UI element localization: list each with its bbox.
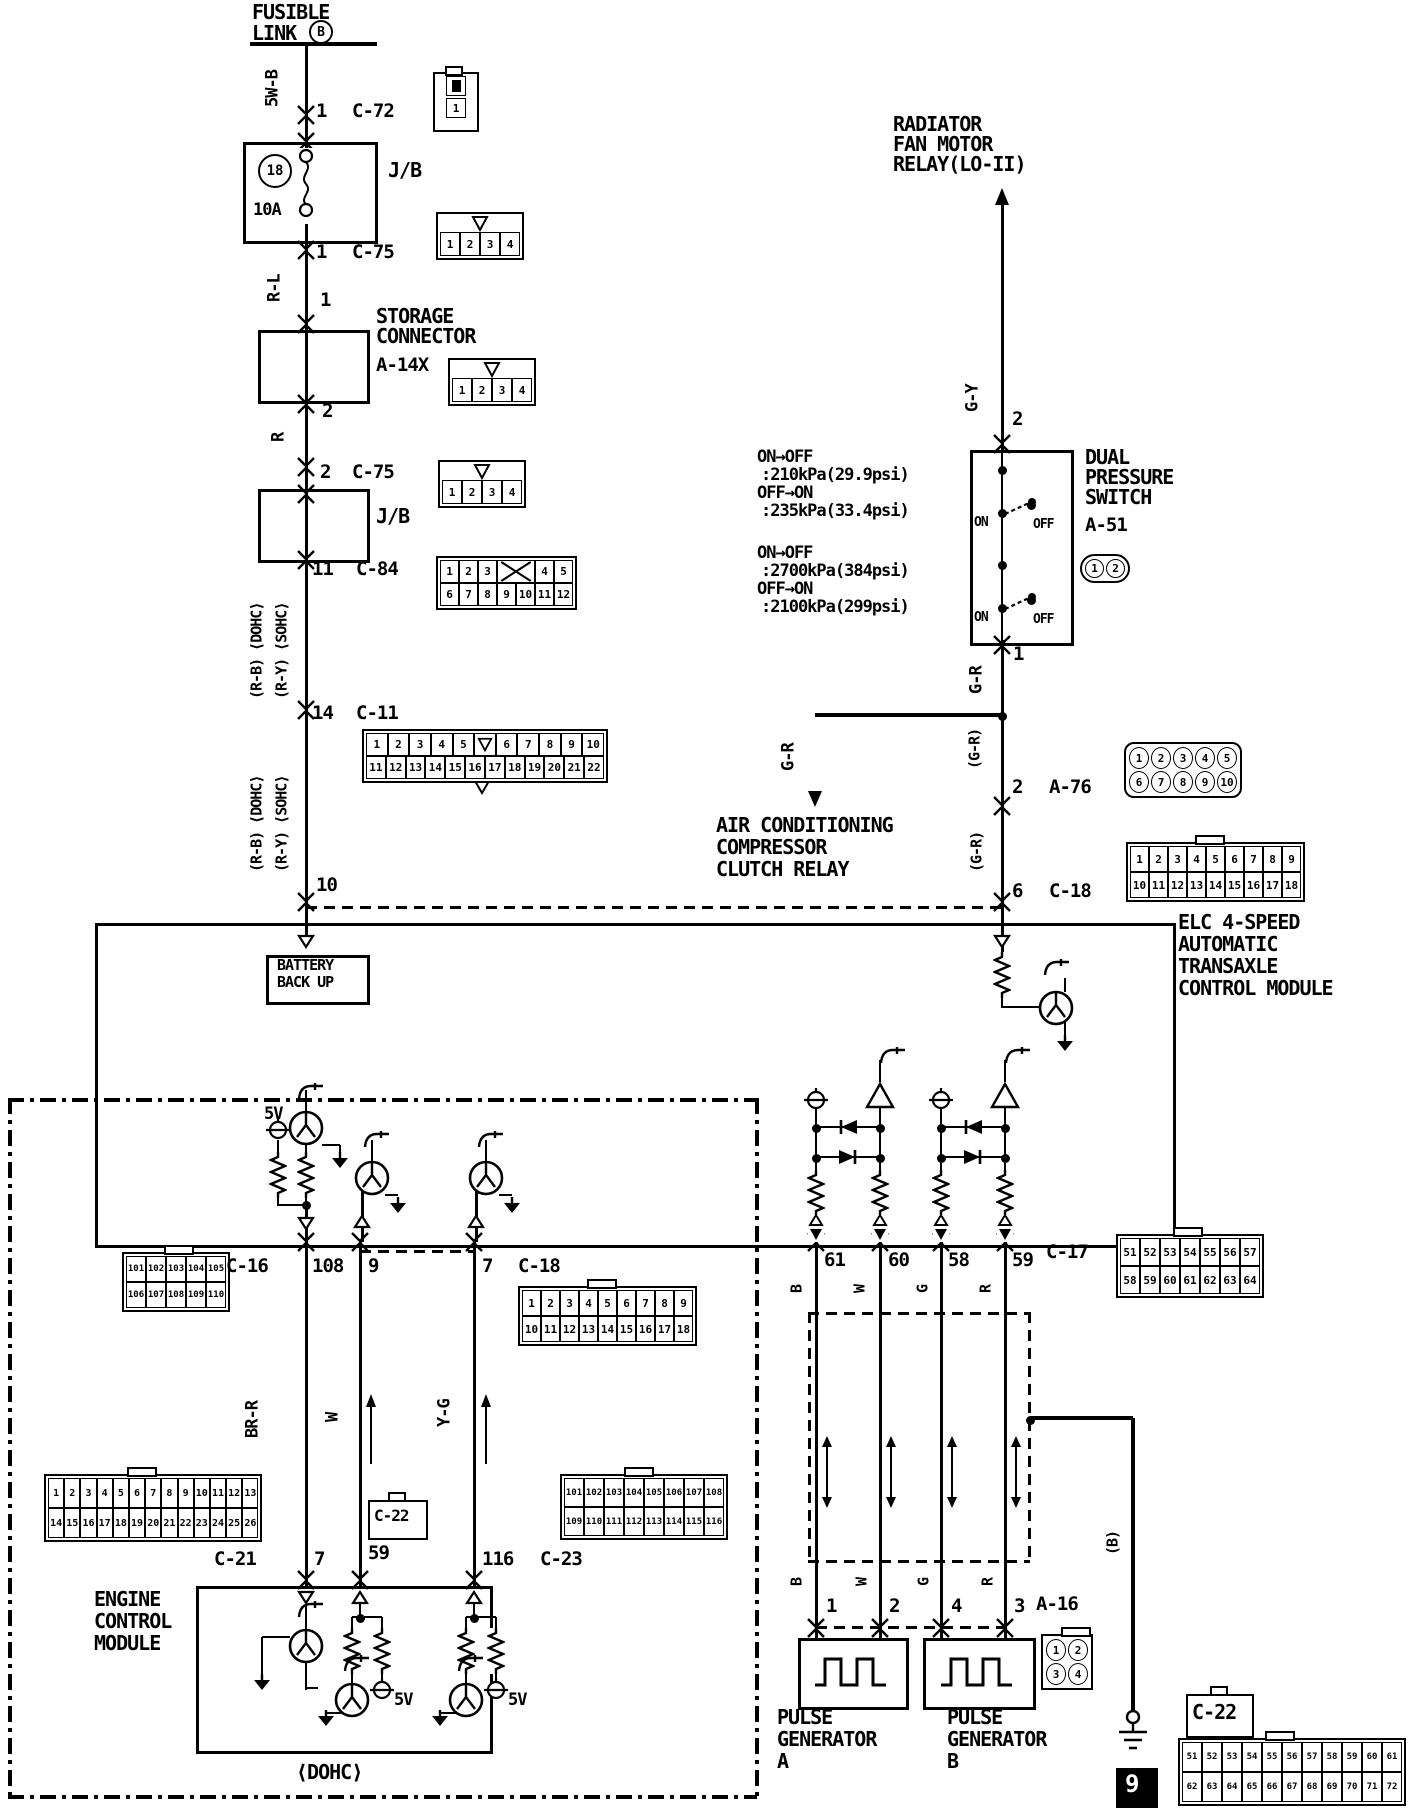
pin-pair-icon (997, 1214, 1013, 1242)
connector-pin: 4 (502, 480, 522, 504)
resistor-icon (996, 1170, 1014, 1216)
square-wave-icon (936, 1650, 1016, 1692)
junction-dot-icon (998, 561, 1007, 570)
keying-notch-icon (474, 733, 496, 756)
connector-c18b-icon: 123456789101112131415161718 (518, 1286, 697, 1346)
pin-triangle-icon (353, 1214, 371, 1229)
label-ecm2: CONTROL (94, 1611, 171, 1632)
label-gy: G-Y (962, 372, 984, 424)
connector-pin: 14 (48, 1508, 64, 1538)
connector-mate-icon (464, 1568, 484, 1592)
collector-hook-icon (1003, 1046, 1033, 1064)
label-pgb1: PULSE (947, 1707, 1002, 1728)
resistor-icon (993, 952, 1011, 998)
connector-c72-icon: 1 (433, 72, 479, 132)
label-p9: 2 (1012, 410, 1022, 430)
label-p7: 14 (312, 704, 333, 724)
junction-dot-icon (998, 712, 1007, 721)
connector-pin: 63 (1220, 1266, 1240, 1294)
connector-pin: 26 (242, 1508, 258, 1538)
connector-pin: 70 (1342, 1772, 1362, 1802)
resistor-icon (932, 1170, 950, 1216)
connector-pin: 12 (226, 1478, 242, 1508)
label-c23: C-23 (540, 1550, 582, 1570)
connector-pin: 13 (1187, 872, 1206, 898)
connector-pin: 67 (1282, 1772, 1302, 1802)
transistor-icon (349, 1155, 395, 1201)
connector-pin: 3 (482, 480, 502, 504)
label-p7b: 7 (482, 1257, 492, 1277)
connector-pin: 4 (535, 560, 554, 583)
connector-pin: 4 (1068, 1663, 1088, 1685)
connector-pin: 1 (48, 1478, 64, 1508)
connector-pin: 64 (1222, 1772, 1242, 1802)
connector-mate-icon (992, 432, 1012, 456)
circled-label-fuse18: 18 (258, 154, 292, 188)
connector-pin: 1 (1085, 559, 1104, 578)
connector-pin: 71 (1362, 1772, 1382, 1802)
label-r1: R (975, 1279, 997, 1299)
connector-tab (388, 1492, 406, 1502)
label-dohc: ⟨DOHC⟩ (296, 1762, 362, 1783)
connector-pin: 2 (1151, 747, 1171, 769)
connector-pin: 11 (210, 1478, 226, 1508)
connector-tab (1265, 1731, 1295, 1741)
connector-pin: 57 (1240, 1238, 1260, 1266)
connector-pin: 4 (512, 378, 532, 402)
junction-dot-icon (937, 1124, 946, 1133)
connector-pin: 3 (409, 733, 431, 756)
connector-a76-icon: 12345678910 (1124, 742, 1242, 798)
label-c72: C-72 (352, 102, 394, 122)
connector-cavity (446, 76, 466, 96)
connector-pin: 10 (194, 1478, 210, 1508)
connector-pin: 6 (129, 1478, 145, 1508)
resistor-icon (269, 1152, 287, 1198)
connector-pin: 68 (1302, 1772, 1322, 1802)
label-p5: 2 (320, 463, 330, 483)
connector-pin: 6 (440, 583, 459, 606)
resistor-icon (807, 1170, 825, 1216)
label-p60: 60 (888, 1251, 909, 1271)
connector-pin: 4 (1195, 747, 1215, 769)
connector-pin: 10 (516, 583, 535, 606)
connector-c75a-icon: 1234 (436, 212, 524, 260)
junction-dot-icon (998, 466, 1007, 475)
connector-pin: 20 (145, 1508, 161, 1538)
connector-mate-icon (296, 103, 316, 127)
connector-pin: 23 (194, 1508, 210, 1538)
connector-pin: 9 (497, 583, 516, 606)
connector-c16-icon: 101102103104105106107108109110 (122, 1252, 230, 1312)
label-p2: 1 (316, 243, 326, 263)
connector-mate-icon (296, 1230, 316, 1254)
signal-arrow-icon (365, 1394, 377, 1464)
connector-pin: 2 (388, 733, 410, 756)
connector-tab (445, 66, 463, 76)
junction-dot-icon (1026, 1416, 1035, 1425)
connector-pin: 60 (1362, 1742, 1382, 1772)
dohc-region-border (8, 1795, 757, 1799)
connector-pin: 12 (560, 1316, 579, 1342)
pin-triangle-icon (297, 934, 315, 949)
label-elc2: AUTOMATIC (1178, 934, 1277, 955)
connector-tab (1210, 1686, 1228, 1696)
connector-pin: 1 (452, 378, 472, 402)
connector-pin: 102 (146, 1256, 166, 1282)
voltage-source-icon (804, 1088, 828, 1112)
label-p4: 2 (322, 402, 332, 422)
label-pgb2: GENERATOR (947, 1729, 1046, 1750)
connector-pin: 60 (1160, 1266, 1180, 1294)
connector-a51-icon: 12 (1080, 554, 1130, 583)
collector-hook-icon (476, 1130, 506, 1148)
connector-pin: 58 (1322, 1742, 1342, 1772)
connector-pin: 54 (1242, 1742, 1262, 1772)
connector-pin: 2 (460, 232, 480, 256)
connector-pin: 8 (539, 733, 561, 756)
connector-tab (624, 1467, 654, 1477)
double-arrow-icon (1010, 1436, 1022, 1508)
connector-pin: 14 (598, 1316, 617, 1342)
label-p59e: 59 (368, 1544, 389, 1564)
connector-pin: 3 (560, 1290, 579, 1316)
junction-dot-icon (876, 1154, 885, 1163)
connector-pin: 101 (126, 1256, 146, 1282)
label-dp3: SWITCH (1085, 487, 1151, 508)
connector-pin: 19 (129, 1508, 145, 1538)
junction-dot-icon (356, 1614, 365, 1623)
label-pga2: GENERATOR (777, 1729, 876, 1750)
shield-dashed-line (808, 1312, 1030, 1315)
label-gr1: G-R (966, 656, 988, 704)
connector-pin: 16 (1244, 872, 1263, 898)
connector-pin: 113 (644, 1507, 664, 1536)
connector-pin: 65 (1242, 1772, 1262, 1802)
connector-pin: 17 (655, 1316, 674, 1342)
collector-hook-icon (342, 1654, 372, 1672)
connector-pin: 7 (517, 733, 539, 756)
connector-pin: 12 (554, 583, 573, 606)
connector-pin: 17 (1263, 872, 1282, 898)
collector-hook-icon (1042, 958, 1072, 976)
connector-pin: 4 (579, 1290, 598, 1316)
connector-c75b-icon: 1234 (438, 460, 526, 508)
connector-pin: 3 (1173, 747, 1193, 769)
label-w2: W (851, 1572, 873, 1592)
label-c84: C-84 (356, 560, 398, 580)
label-g2: G (913, 1572, 935, 1592)
label-off2: OFF (1033, 613, 1053, 627)
connector-pin: 9 (674, 1290, 693, 1316)
collector-hook-icon (456, 1654, 486, 1672)
wire-segment (1030, 1416, 1133, 1420)
connector-pin: 8 (655, 1290, 674, 1316)
junction-dot-icon (1001, 1154, 1010, 1163)
connector-pin: 105 (206, 1256, 226, 1282)
earth-ground-icon (1116, 1710, 1150, 1760)
connector-pin: 54 (1180, 1238, 1200, 1266)
connector-pin: 3 (480, 232, 500, 256)
connector-pin: 1 (446, 98, 466, 118)
connector-pin: 11 (1149, 872, 1168, 898)
switch-contact-icon (1004, 591, 1038, 611)
connector-pin: 1 (440, 232, 460, 256)
connector-pin: 1 (1046, 1639, 1066, 1661)
connector-pin: 25 (226, 1508, 242, 1538)
connector-pin: 107 (684, 1478, 704, 1507)
pin-pair-icon (872, 1214, 888, 1242)
connector-mate-icon (870, 1616, 890, 1640)
connector-pin: 6 (617, 1290, 636, 1316)
resistor-icon (373, 1628, 391, 1674)
fuse-icon (296, 148, 316, 224)
ground-icon (329, 1152, 351, 1170)
wire-segment (940, 1242, 943, 1640)
transistor-icon (283, 1623, 329, 1669)
connector-pin: 2 (1149, 846, 1168, 872)
label-grp1: (G-R) (964, 717, 986, 781)
connector-pin: 6 (496, 733, 518, 756)
connector-pin: 2 (1106, 559, 1125, 578)
transistor-icon (1033, 985, 1079, 1031)
connector-pin: 111 (604, 1507, 624, 1536)
label-v5a: 5V (394, 1692, 412, 1710)
connector-pin: 2 (459, 560, 478, 583)
connector-pin: 1 (1130, 846, 1149, 872)
connector-pin: 9 (561, 733, 583, 756)
connector-boundary-dashed-line (360, 1250, 474, 1253)
junction-dot-icon (812, 1124, 821, 1133)
label-fuseA: 10A (253, 202, 281, 220)
keying-notch-icon (452, 362, 532, 378)
label-p7e: 7 (314, 1550, 324, 1570)
label-rb1: (R-B) ⟨DOHC⟩ (246, 566, 268, 736)
connector-pin: 114 (664, 1507, 684, 1536)
connector-pin: 1 (440, 560, 459, 583)
connector-pin: 1 (366, 733, 388, 756)
label-p9b: 9 (368, 1257, 378, 1277)
connector-c17-icon: 5152535455565758596061626364 (1116, 1234, 1264, 1298)
connector-pin: 18 (1282, 872, 1301, 898)
label-w1: W (849, 1279, 871, 1299)
circled-label-f3: B (309, 20, 333, 44)
connector-pin: 61 (1382, 1742, 1402, 1772)
connector-c23-icon: 1011021031041051061071081091101111121131… (560, 1474, 728, 1540)
connector-pin: 56 (1282, 1742, 1302, 1772)
connector-pin: 5 (1217, 747, 1237, 769)
connector-mate-icon (995, 1616, 1015, 1640)
label-c22br: C-22 (1192, 1702, 1236, 1723)
wiring-diagram-page: 1234123412341234567891011121234567891011… (0, 0, 1408, 1810)
label-elc3: TRANSAXLE (1178, 956, 1277, 977)
label-r: R (268, 426, 290, 448)
collector-hook-icon (296, 1600, 326, 1618)
connector-pin: 2 (541, 1290, 560, 1316)
label-c11: C-11 (356, 704, 398, 724)
connector-pin: 66 (1262, 1772, 1282, 1802)
connector-pin: 3 (1046, 1663, 1066, 1685)
connector-pin: 5 (113, 1478, 129, 1508)
shield-dashed-line (1028, 1312, 1031, 1562)
connector-pin: 14 (425, 756, 445, 779)
collector-hook-icon (878, 1046, 908, 1064)
shield-dashed-line (808, 1560, 1030, 1563)
label-v5b: 5V (508, 1692, 526, 1710)
square-wave-icon (810, 1650, 890, 1692)
label-c18b: C-18 (518, 1257, 560, 1277)
label-gr2: G-R (778, 728, 800, 786)
wire-segment (305, 1242, 308, 1586)
connector-c18a-icon: 123456789101112131415161718 (1126, 842, 1305, 902)
label-pg2: 2 (889, 1597, 899, 1617)
connector-pin: 3 (492, 378, 512, 402)
connector-mate-icon (296, 890, 316, 914)
pin-triangle-icon (467, 1214, 485, 1229)
label-f2: LINK (252, 23, 296, 44)
label-ecm3: MODULE (94, 1633, 160, 1654)
connector-pin: 10 (1217, 771, 1237, 793)
connector-pin: 7 (459, 583, 478, 606)
connector-pin: 22 (584, 756, 604, 779)
label-yg: Y-G (434, 1386, 456, 1440)
connector-pin: 106 (664, 1478, 684, 1507)
page-reference-number: 9 (1125, 1772, 1138, 1797)
connector-pin: 109 (564, 1507, 584, 1536)
label-pr8: :2100kPa(299psi) (761, 599, 909, 617)
connector-pin: 108 (704, 1478, 724, 1507)
connector-pin: 5 (1206, 846, 1225, 872)
connector-pin: 8 (1263, 846, 1282, 872)
connector-pin: 5 (598, 1290, 617, 1316)
dohc-region-border (8, 1098, 12, 1798)
connector-pin: 8 (1173, 771, 1193, 793)
junction-dot-icon (302, 1201, 311, 1210)
wire-segment (473, 1242, 476, 1586)
voltage-source-icon (484, 1678, 508, 1702)
connector-pin: 7 (1151, 771, 1171, 793)
connector-pin: 19 (525, 756, 545, 779)
collector-hook-icon (362, 1130, 392, 1148)
connector-pin: 16 (636, 1316, 655, 1342)
label-st3: A-14X (376, 356, 428, 376)
connector-c11-icon: 12345678910111213141516171819202122 (362, 729, 608, 783)
connector-mate-icon (350, 1230, 370, 1254)
connector-pin: 52 (1202, 1742, 1222, 1772)
connector-pin: 62 (1182, 1772, 1202, 1802)
wire-segment (1131, 1418, 1135, 1712)
connector-a16-icon: 1234 (1041, 1634, 1093, 1690)
connector-pin: 3 (478, 560, 497, 583)
connector-pin: 18 (505, 756, 525, 779)
connector-mate-icon (296, 392, 316, 416)
connector-mate-icon (296, 1568, 316, 1592)
wire-segment (879, 1242, 882, 1640)
connector-pin: 16 (465, 756, 485, 779)
connector-pin: 56 (1220, 1238, 1240, 1266)
label-bb1: BATTERY (277, 958, 333, 974)
double-arrow-icon (885, 1436, 897, 1508)
wire-segment (359, 1242, 362, 1586)
label-a16: A-16 (1036, 1595, 1078, 1615)
connector-pin: 10 (522, 1316, 541, 1342)
label-pg4: 4 (951, 1597, 961, 1617)
connector-pin: 103 (166, 1256, 186, 1282)
connector-pin: 22 (178, 1508, 194, 1538)
connector-pin: 18 (674, 1316, 693, 1342)
connector-tab (1061, 1627, 1091, 1637)
connector-pin: 6 (1225, 846, 1244, 872)
connector-tab (1173, 1227, 1203, 1237)
connector-mate-icon (992, 633, 1012, 657)
connector-pin: 7 (145, 1478, 161, 1508)
connector-pin: 103 (604, 1478, 624, 1507)
label-off1: OFF (1033, 518, 1053, 532)
label-a76: A-76 (1049, 778, 1091, 798)
connector-pin: 102 (584, 1478, 604, 1507)
connector-mate-icon (806, 1616, 826, 1640)
label-jb2: J/B (376, 506, 409, 527)
label-rl: R-L (264, 266, 286, 310)
connector-pin: 1 (1129, 747, 1149, 769)
connector-pin: 3 (80, 1478, 96, 1508)
wire-segment (815, 1242, 818, 1640)
connector-tab (164, 1245, 194, 1255)
connector-pin: 59 (1342, 1742, 1362, 1772)
double-arrow-icon (946, 1436, 958, 1508)
label-elc4: CONTROL MODULE (1178, 978, 1333, 999)
blocked-cavity-icon (497, 560, 535, 583)
label-r2: R (977, 1572, 999, 1592)
connector-pin: 115 (684, 1507, 704, 1536)
connector-pin: 12 (386, 756, 406, 779)
arrow-up-icon (994, 188, 1010, 206)
label-5wb: 5W-B (262, 56, 284, 122)
label-c75a: C-75 (352, 243, 394, 263)
ground-icon (501, 1197, 523, 1215)
label-p108: 108 (312, 1257, 343, 1277)
connector-pin: 4 (500, 232, 520, 256)
connector-mate-icon (296, 455, 316, 479)
junction-dot-icon (470, 1614, 479, 1623)
connector-a14x-icon: 1234 (448, 358, 536, 406)
label-b1: B (786, 1279, 808, 1299)
connector-mate-icon (350, 1568, 370, 1592)
connector-mate-icon (992, 890, 1012, 914)
connector-pin: 104 (624, 1478, 644, 1507)
transistor-icon (463, 1155, 509, 1201)
connector-pin: 11 (535, 583, 554, 606)
connector-pin: 17 (485, 756, 505, 779)
connector-pin: 52 (1140, 1238, 1160, 1266)
connector-pin: 112 (624, 1507, 644, 1536)
label-p11: 2 (1012, 778, 1022, 798)
label-ecm1: ENGINE (94, 1589, 160, 1610)
label-bb2: BACK UP (277, 975, 333, 991)
connector-pin: 18 (113, 1508, 129, 1538)
connector-pin: 107 (146, 1282, 166, 1308)
connector-pin: 4 (1187, 846, 1206, 872)
connector-pin: 1 (442, 480, 462, 504)
connector-pin: 2 (64, 1478, 80, 1508)
pin-triangle-icon (351, 1590, 369, 1605)
connector-pin: 2 (1068, 1639, 1088, 1661)
connector-c84-icon: 123456789101112 (436, 556, 577, 610)
connector-pin: 4 (431, 733, 453, 756)
label-c22s: C-22 (374, 1508, 409, 1525)
label-b2: B (786, 1572, 808, 1592)
double-arrow-icon (821, 1436, 833, 1508)
